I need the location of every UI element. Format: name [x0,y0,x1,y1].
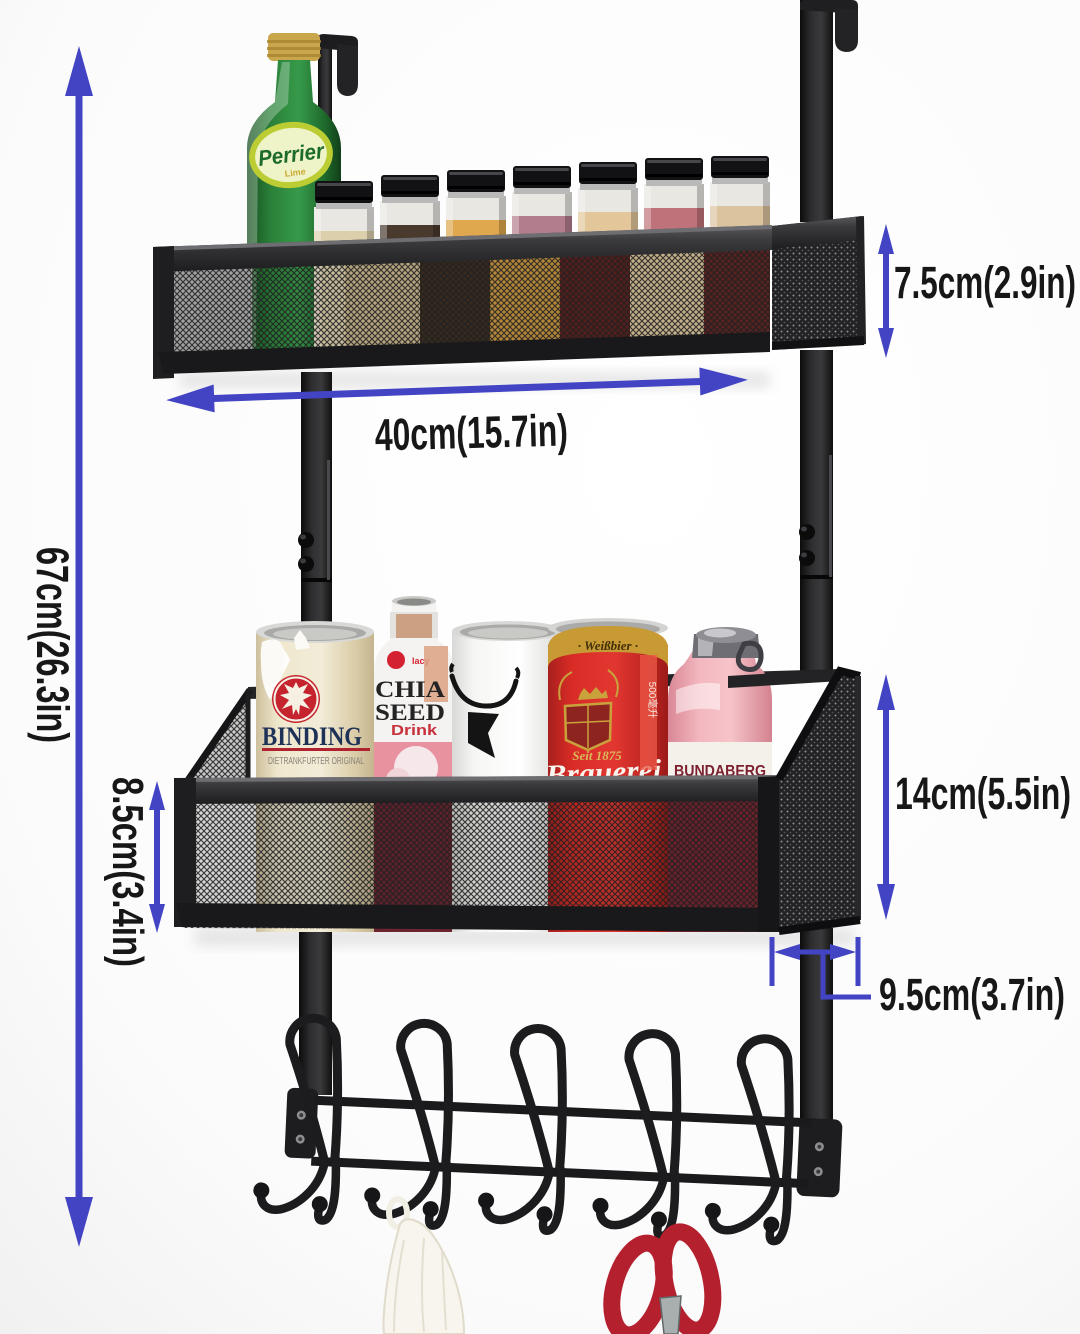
svg-text:67cm(26.3in): 67cm(26.3in) [27,547,78,743]
svg-text:DIETRANKFURTER ORIGINAL: DIETRANKFURTER ORIGINAL [268,756,364,767]
svg-text:9.5cm(3.7in): 9.5cm(3.7in) [879,969,1065,1020]
svg-text:Drink: Drink [391,722,438,739]
svg-text:500毫升: 500毫升 [646,682,659,719]
svg-text:· Weißbier ·: · Weißbier · [578,638,638,653]
svg-text:14cm(5.5in): 14cm(5.5in) [895,768,1071,819]
svg-text:CHIA: CHIA [375,677,445,702]
svg-text:8.5cm(3.4in): 8.5cm(3.4in) [103,777,152,967]
svg-text:40cm(15.7in): 40cm(15.7in) [374,404,568,460]
svg-text:7.5cm(2.9in): 7.5cm(2.9in) [894,257,1076,308]
svg-text:BINDING: BINDING [262,722,362,751]
